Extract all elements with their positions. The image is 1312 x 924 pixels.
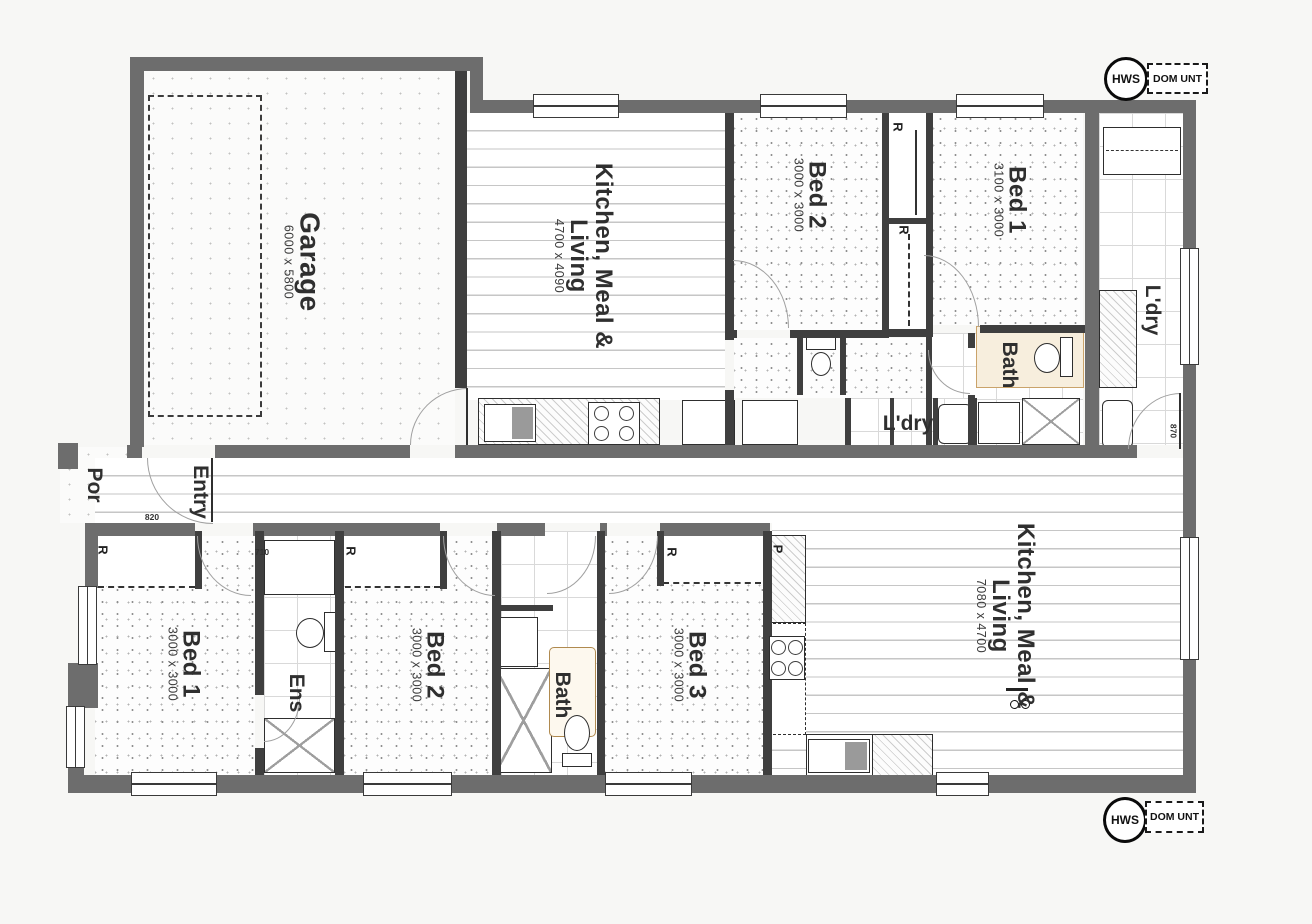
wall xyxy=(130,57,483,71)
wall xyxy=(840,333,846,395)
burner-icon xyxy=(594,426,609,441)
toilet-cistern-bath-b xyxy=(562,753,592,767)
wall xyxy=(470,100,535,113)
robe-bed2-b-floor xyxy=(344,531,440,586)
door-mark-entry: 820 xyxy=(145,507,159,525)
wall xyxy=(497,523,545,536)
washing-machine-a xyxy=(938,404,972,444)
wall xyxy=(980,325,1085,333)
room-name: Ens xyxy=(285,674,308,713)
wall xyxy=(725,390,734,445)
pantry-letter: P xyxy=(770,545,785,554)
laundry-b-label: L'dry xyxy=(1141,285,1163,336)
garage-car-space xyxy=(148,95,262,417)
pantry-label: P xyxy=(769,545,786,554)
wall xyxy=(882,218,933,224)
cooktop-b xyxy=(769,636,805,680)
window xyxy=(605,772,692,796)
robe-label-bed1-a: R xyxy=(895,225,912,234)
door-leaf-garage xyxy=(466,388,468,445)
room-dims: 3000 x 3000 xyxy=(671,628,684,702)
room-dims: 3000 x 3000 xyxy=(409,628,422,702)
wall xyxy=(618,100,762,113)
burner-icon xyxy=(771,640,786,655)
window xyxy=(1180,537,1199,660)
door-size: 710 xyxy=(255,547,269,557)
sink-drainer-a xyxy=(512,407,533,439)
room-name: L'dry xyxy=(883,412,934,435)
linen-shelf-line xyxy=(1106,150,1178,151)
room-name: Garage xyxy=(295,212,325,312)
window xyxy=(66,706,85,768)
wall xyxy=(657,531,664,586)
robe-slider xyxy=(915,130,917,215)
door-mark-laundry: 870 xyxy=(1166,424,1183,438)
wall xyxy=(130,57,144,447)
hws-label: HWS xyxy=(1112,72,1140,86)
wc-cistern-a xyxy=(806,337,836,350)
room-dims: 3000 x 3000 xyxy=(791,158,804,232)
wall xyxy=(690,775,938,793)
bath-a-label: Bath xyxy=(998,342,1020,389)
wall xyxy=(455,71,467,388)
bed1-a-label: Bed 1 3100 x 3000 xyxy=(991,163,1030,237)
dom-unit-marker-bottom: DOM UNT xyxy=(1145,801,1204,833)
wall xyxy=(797,333,803,395)
bed2-b-label: Bed 2 3000 x 3000 xyxy=(409,628,448,702)
robe-front-bed2-b xyxy=(345,586,440,588)
window xyxy=(533,94,619,118)
door-mark-ensuite: 710 xyxy=(255,542,269,560)
floor-plan: HWS DOM UNT HWS DOM UNT Garage 6000 x 58… xyxy=(0,0,1312,924)
bed3-b-label: Bed 3 3000 x 3000 xyxy=(671,628,710,702)
bed2-a-label: Bed 2 3000 x 3000 xyxy=(791,158,830,232)
room-name: Entry xyxy=(189,465,212,519)
laundry-cabinet-b xyxy=(1099,290,1137,388)
sink-drainer-b xyxy=(845,742,867,770)
room-dims: 3100 x 3000 xyxy=(991,163,1004,237)
dom-unit-marker-top: DOM UNT xyxy=(1147,63,1208,94)
wall xyxy=(253,523,440,536)
dom-unit-label: DOM UNT xyxy=(1150,811,1199,823)
toilet-bowl-bath-a xyxy=(1034,343,1060,373)
robe-label-bed2-b: R xyxy=(342,546,359,555)
room-name: L'dry xyxy=(1141,285,1164,336)
garage-label: Garage 6000 x 5800 xyxy=(282,212,325,312)
robe-label-bed2-a: R xyxy=(889,122,906,131)
vanity-bath-b xyxy=(500,617,538,667)
room-name: Kitchen, Meal & xyxy=(1013,523,1038,709)
wall xyxy=(455,445,1137,458)
robe-slider xyxy=(908,234,910,326)
robe-letter: R xyxy=(890,122,905,131)
wall xyxy=(882,113,889,335)
window xyxy=(1180,248,1199,365)
room-name: Por xyxy=(83,467,106,502)
porch-post xyxy=(58,443,78,469)
room-name: Bath xyxy=(551,672,574,719)
wall xyxy=(68,775,133,793)
wall xyxy=(597,531,605,775)
bench-end-b xyxy=(872,734,933,776)
wc-bowl-a xyxy=(811,352,831,376)
room-name: Kitchen, Meal & xyxy=(591,163,616,349)
toilet-bowl-bath-b xyxy=(564,715,590,751)
shower-bath-b xyxy=(495,668,552,773)
room-dims: 3000 x 3000 xyxy=(165,627,178,701)
burner-icon xyxy=(788,661,803,676)
window xyxy=(363,772,452,796)
hws-marker-bottom: HWS xyxy=(1103,797,1147,843)
wall xyxy=(933,398,938,445)
toilet-bowl-ensuite xyxy=(296,618,324,648)
door-leaf-laundry-b xyxy=(1179,393,1181,449)
toilet-cistern-bath-a xyxy=(1060,337,1073,377)
ensuite-label: Ens xyxy=(285,674,307,713)
room-name: Living xyxy=(987,523,1012,709)
room-dims: 7080 x 4700 xyxy=(974,523,987,709)
robe-letter: R xyxy=(896,225,911,234)
room-dims: 4700 x 4090 xyxy=(552,163,565,349)
wall xyxy=(1183,365,1196,537)
burner-icon xyxy=(619,406,634,421)
room-name: Bed 3 xyxy=(684,628,709,702)
robe-letter: R xyxy=(343,546,358,555)
robe-label-bed3-b: R xyxy=(663,547,680,556)
wall xyxy=(497,605,553,611)
vanity-bath-a xyxy=(978,402,1020,444)
wall xyxy=(1183,660,1196,793)
dom-unit-label: DOM UNT xyxy=(1153,73,1202,85)
room-name: Bed 2 xyxy=(804,158,829,232)
room-name: Bed 1 xyxy=(1004,163,1029,237)
wall xyxy=(1183,100,1196,248)
shower-bath-a xyxy=(1022,398,1080,445)
window xyxy=(956,94,1044,118)
wall xyxy=(85,523,195,536)
burner-icon xyxy=(788,640,803,655)
robe-letter: R xyxy=(664,547,679,556)
wall xyxy=(85,523,98,588)
burner-icon xyxy=(619,426,634,441)
robe-bed1-b-floor xyxy=(95,531,195,586)
window xyxy=(760,94,847,118)
wall xyxy=(725,330,737,338)
wall xyxy=(1042,100,1195,113)
hall-cupboard-a xyxy=(742,400,798,445)
burner-icon xyxy=(594,406,609,421)
bed1-b-label: Bed 1 3000 x 3000 xyxy=(165,627,204,701)
robe-letter: R xyxy=(95,545,110,554)
wall xyxy=(215,775,365,793)
burner-icon xyxy=(771,661,786,676)
wall xyxy=(968,333,975,348)
door-size: 870 xyxy=(1168,424,1178,438)
hws-marker-top: HWS xyxy=(1104,57,1148,101)
bath-b-label: Bath xyxy=(551,672,573,719)
wall xyxy=(987,775,1196,793)
porch-label: Por xyxy=(83,467,105,502)
wall xyxy=(127,445,142,458)
room-name: Bed 1 xyxy=(178,627,203,701)
window xyxy=(78,586,97,665)
window xyxy=(936,772,989,796)
cooktop-a xyxy=(588,402,640,445)
wall xyxy=(450,775,607,793)
wall xyxy=(845,100,958,113)
robe-front-bed1-b xyxy=(98,586,195,588)
laundry-a-label: L'dry xyxy=(883,412,934,436)
room-dims: 6000 x 5800 xyxy=(282,212,295,312)
window xyxy=(131,772,217,796)
wall xyxy=(255,748,264,775)
hws-label: HWS xyxy=(1111,813,1139,827)
room-name: Living xyxy=(565,163,590,349)
robe-front-bed3-b xyxy=(663,582,761,584)
wall xyxy=(1085,113,1099,445)
wall xyxy=(972,398,977,445)
wall xyxy=(215,445,410,458)
kitchen-living-a-label: Kitchen, Meal & Living 4700 x 4090 xyxy=(552,163,616,349)
wall xyxy=(845,398,851,445)
robe-label-bed1-b: R xyxy=(94,545,111,554)
linen-cupboard-b xyxy=(1103,127,1181,175)
kitchen-living-b-label: Kitchen, Meal & Living 7080 x 4700 xyxy=(974,523,1038,709)
door-size: 820 xyxy=(145,512,159,522)
wall xyxy=(335,531,344,775)
entry-label: Entry xyxy=(189,465,211,519)
wall xyxy=(660,523,770,536)
wall xyxy=(68,663,98,708)
room-name: Bath xyxy=(998,342,1021,389)
room-name: Bed 2 xyxy=(422,628,447,702)
vanity-ensuite xyxy=(264,540,335,595)
